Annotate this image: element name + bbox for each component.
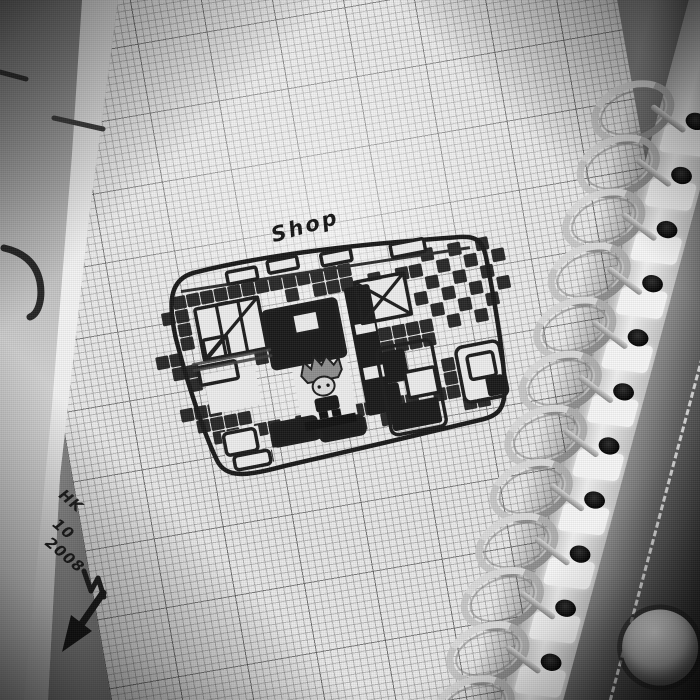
sketch-block <box>312 282 327 297</box>
sketch-block <box>414 291 429 306</box>
sketch-block <box>452 269 467 284</box>
sketch-block <box>241 282 256 297</box>
sketch-block <box>223 413 238 428</box>
sketch-block <box>175 309 190 324</box>
sketch-block <box>425 274 440 289</box>
sketch-block <box>391 324 406 339</box>
arrow-head <box>62 615 92 652</box>
handwritten-date: HK 10 2008 <box>40 488 130 598</box>
sketch-block <box>180 408 195 423</box>
sketch-block <box>199 290 214 305</box>
sketch-block <box>210 416 225 431</box>
sketch-block <box>441 357 456 372</box>
sketch-block <box>326 279 341 294</box>
sketch-block <box>441 285 456 300</box>
sketch-block <box>419 318 434 333</box>
sketch-block <box>177 322 192 337</box>
sketch-clear-area <box>203 365 262 414</box>
sketch-block <box>378 326 393 341</box>
sketch-block <box>446 313 461 328</box>
date-initials: HK <box>55 486 87 517</box>
sketch-block <box>457 296 472 311</box>
sketch-block <box>430 302 445 317</box>
sketch-block <box>405 321 420 336</box>
sketch-block <box>408 263 423 278</box>
sketch-block <box>155 355 170 370</box>
sketch-block <box>463 253 478 268</box>
sketch-block <box>213 287 228 302</box>
sketch-block <box>436 258 451 273</box>
notebook-photo: Shop HK 10 2008 <box>0 0 700 700</box>
sketch-block <box>180 336 195 351</box>
sketch-block <box>186 292 201 307</box>
sketch-block <box>237 411 252 426</box>
sketch-block <box>227 284 242 299</box>
sketch-block <box>285 287 300 302</box>
